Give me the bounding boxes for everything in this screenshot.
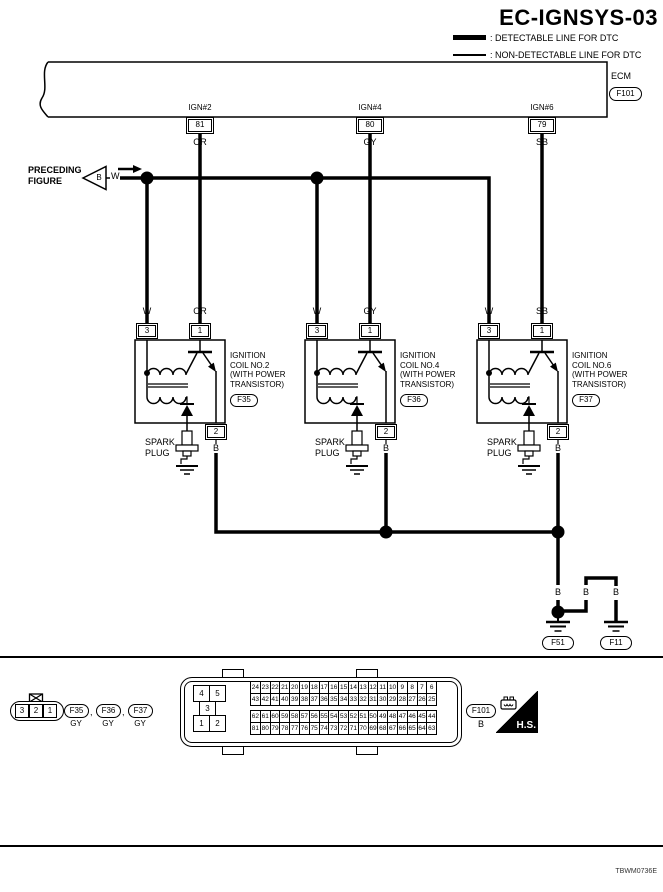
ground-connector-id: F51 (542, 636, 574, 650)
connector-color-label: GY (70, 719, 82, 729)
wire-b-bracket-top (586, 578, 616, 586)
coil-pin-box: 1 (531, 323, 553, 339)
wire-color-label: B (555, 587, 561, 598)
section-divider (0, 656, 663, 658)
wire-color-label: B (613, 587, 619, 598)
ecm-pin-number-box: 79 (528, 117, 556, 134)
ecm-connector-pin-cell: 5 (209, 685, 226, 702)
coil-pin-box: 1 (359, 323, 381, 339)
wire-color-label: W (485, 306, 494, 317)
ecm-connector-id-badge: F101 (466, 704, 496, 718)
separator-comma: , (122, 707, 125, 718)
wire-color-label: W (111, 171, 120, 182)
junction-dot (552, 606, 565, 619)
coil-connector-pin: 1 (43, 704, 57, 718)
ecm-connector-grid-row: 81807978777675747372717069686766656463 (250, 722, 436, 735)
ecm-connector-pin-cell: 4 (193, 685, 210, 702)
ecm-pin-number-box: 80 (356, 117, 384, 134)
coil-pin-box: 1 (189, 323, 211, 339)
wire-color-label: SB (536, 306, 548, 317)
wire-color-label: B (555, 443, 561, 454)
ecm-pin-number: 81 (188, 119, 212, 132)
wire-color-label: W (313, 306, 322, 317)
coil-pin-box: 3 (478, 323, 500, 339)
coil-name-label: IGNITION COIL NO.2 (WITH POWER TRANSISTO… (230, 351, 286, 389)
ecm-connector-pin-cell: 3 (199, 701, 216, 716)
page-title: EC-IGNSYS-03 (499, 5, 658, 31)
connector-id-badge: F36 (96, 704, 121, 718)
coil-connector-id: F37 (572, 394, 600, 407)
bottom-divider (0, 845, 663, 847)
preceding-figure-triangle-icon (83, 167, 106, 190)
ground-connector-id: F11 (600, 636, 632, 650)
ecm-pin-number-box: 81 (186, 117, 214, 134)
wire-color-label: B (383, 443, 389, 454)
ecm-pin-signal: IGN#2 (188, 103, 211, 113)
ecm-connector-pin-cell: 2 (209, 715, 226, 732)
connector-tab (222, 746, 244, 755)
separator-comma: , (90, 707, 93, 718)
wire-color-label: B (583, 587, 589, 598)
coil-name-label: IGNITION COIL NO.4 (WITH POWER TRANSISTO… (400, 351, 456, 389)
connector-color-label: GY (134, 719, 146, 729)
ecm-pin-number: 80 (358, 119, 382, 132)
coil-connector-pin: 2 (29, 704, 43, 718)
ecm-label: ECM (611, 71, 631, 82)
connector-tab (356, 746, 378, 755)
wiring-diagram-page: EC-IGNSYS-03 : DETECTABLE LINE FOR DTC :… (0, 0, 663, 892)
wire-color-label: W (143, 306, 152, 317)
junction-dot (311, 172, 324, 185)
ecm-connector-pin-cell: 1 (193, 715, 210, 732)
ecm-box (40, 62, 607, 117)
ecm-connector-id: F101 (609, 87, 642, 101)
legend-detectable-label: : DETECTABLE LINE FOR DTC (490, 33, 618, 44)
coil-pin-box: 3 (306, 323, 328, 339)
wire-color-label: B (213, 443, 219, 454)
ecm-connector-pin-grid: 2423222120191817161514131211109876434241… (250, 681, 436, 735)
junction-dot (380, 526, 393, 539)
ecm-pin-number: 79 (530, 119, 554, 132)
coil-name-label: IGNITION COIL NO.6 (WITH POWER TRANSISTO… (572, 351, 628, 389)
legend-thick-line-sample (453, 35, 486, 40)
wire-color-label: OR (193, 306, 207, 317)
coil-connector-id: F36 (400, 394, 428, 407)
connector-color-label: B (478, 719, 484, 730)
legend-thin-line-sample (453, 54, 486, 56)
ecm-connector-grid-row: 43424140393837363534333231302928272625 (250, 693, 436, 706)
hs-label: H.S. (517, 720, 536, 731)
wire-color-label: OR (193, 137, 207, 148)
preceding-figure-label: PRECEDING FIGURE (28, 165, 82, 187)
flow-arrow-icon (133, 165, 142, 173)
wire-color-label: GY (363, 306, 376, 317)
figure-code: TBWM0736E (615, 868, 657, 876)
coil-pin-box: 3 (136, 323, 158, 339)
wire-color-label: GY (363, 137, 376, 148)
spark-plug-label: SPARK PLUG (145, 437, 175, 459)
harness-side-view-icon: H.S. (496, 691, 538, 733)
connector-id-badge: F37 (128, 704, 153, 718)
junction-dot (552, 526, 565, 539)
ecm-pin-signal: IGN#4 (358, 103, 381, 113)
coil-pin-box: 2 (205, 424, 227, 440)
junction-dot (141, 172, 154, 185)
connector-glyph-icon (499, 694, 521, 712)
ecm-pin-signal: IGN#6 (530, 103, 553, 113)
ecm-connector-pin-cell: 63 (426, 722, 437, 735)
connector-id-badge: F35 (64, 704, 89, 718)
legend-non-detectable-label: : NON-DETECTABLE LINE FOR DTC (490, 50, 641, 61)
preceding-figure-tag: B (96, 173, 101, 183)
spark-plug-label: SPARK PLUG (315, 437, 345, 459)
connector-color-label: GY (102, 719, 114, 729)
coil-pin-box: 2 (547, 424, 569, 440)
wire-color-label: SB (536, 137, 548, 148)
coil-pin-box: 2 (375, 424, 397, 440)
spark-plug-label: SPARK PLUG (487, 437, 517, 459)
coil-connector-pin: 3 (15, 704, 29, 718)
coil-connector-id: F35 (230, 394, 258, 407)
ecm-connector-pin-cell: 25 (426, 693, 437, 706)
wire-w-bus (120, 178, 489, 323)
